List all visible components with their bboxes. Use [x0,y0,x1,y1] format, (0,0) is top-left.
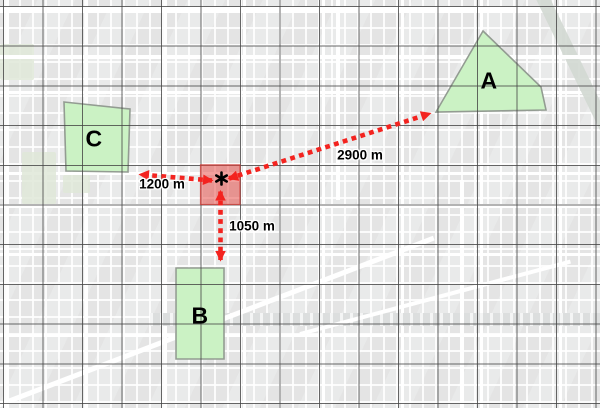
zone-a-label: A [480,70,497,93]
measurement-overlay [0,0,600,408]
zone-b-label: B [191,305,208,328]
map-canvas[interactable]: A B C 2900 m 1050 m 1200 m [0,0,600,408]
distance-label-a: 2900 m [337,148,383,162]
distance-label-b: 1050 m [229,219,275,233]
zone-c-label: C [85,128,102,151]
distance-label-c: 1200 m [139,177,185,191]
measure-arrow-a [229,114,430,179]
